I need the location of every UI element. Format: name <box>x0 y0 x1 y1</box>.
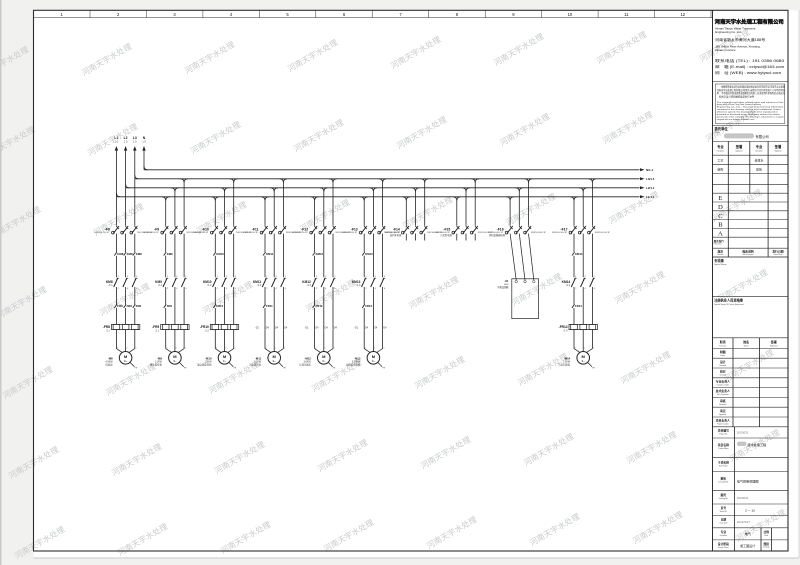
svg-text:Special Stamp: Special Stamp <box>714 263 726 266</box>
svg-text:Function: Function <box>719 344 726 347</box>
svg-text:专业: 专业 <box>721 530 727 534</box>
svg-text:项目负责人: 项目负责人 <box>716 419 730 423</box>
svg-text:网 址 (WEB) : www.hytyscl.com: 网 址 (WEB) : www.hytyscl.com <box>715 70 781 75</box>
svg-text:设计: 设计 <box>720 360 726 364</box>
svg-text:KM12: KM12 <box>302 280 311 284</box>
svg-text:FR13: FR13 <box>365 304 372 308</box>
svg-text:图名: 图名 <box>721 477 727 481</box>
svg-text:子项名称: 子项名称 <box>718 461 729 465</box>
svg-text:电气: 电气 <box>745 531 751 536</box>
svg-text:潜水搅拌机: 潜水搅拌机 <box>150 363 163 367</box>
svg-text:比例: 比例 <box>764 530 770 534</box>
svg-text:图号: 图号 <box>721 493 727 497</box>
svg-text:3~: 3~ <box>223 359 227 363</box>
svg-text:-F13: -F13 <box>351 227 358 231</box>
svg-text:项目名称: 项目名称 <box>718 443 729 447</box>
svg-text:D: D <box>718 204 723 211</box>
svg-text:Issue Date: Issue Date <box>719 522 727 525</box>
svg-text:职责: 职责 <box>720 339 726 344</box>
svg-text:L3/1.1: L3/1.1 <box>646 177 655 181</box>
svg-text:2020031: 2020031 <box>737 496 749 500</box>
svg-text:C: C <box>718 213 723 220</box>
svg-text:Drawing: Drawing <box>763 547 769 549</box>
svg-text:姓名: 姓名 <box>742 339 749 344</box>
svg-text:图别: 图别 <box>764 542 770 546</box>
svg-text:NSX100-100 3P: NSX100-100 3P <box>193 232 209 234</box>
svg-text:本图纸所载全部内容的版权及相关权益均归河南天宇(河南天宇水处: 本图纸所载全部内容的版权及相关权益均归河南天宇(河南天宇水处理 <box>717 84 785 88</box>
svg-text:混合液搅拌机: 混合液搅拌机 <box>197 363 212 367</box>
svg-text:Design Phase: Design Phase <box>718 547 729 549</box>
svg-text:Drawn: Drawn <box>720 355 725 357</box>
svg-text:制图: 制图 <box>720 350 726 354</box>
svg-text:Discipline Leader: Discipline Leader <box>717 384 730 386</box>
svg-text:建筑: 建筑 <box>756 167 762 172</box>
svg-text:/1.1: /1.1 <box>109 284 114 287</box>
svg-text:加药搅拌电机: 加药搅拌电机 <box>346 363 361 367</box>
svg-text:-F15: -F15 <box>443 227 450 231</box>
svg-text:-FR9: -FR9 <box>152 325 159 329</box>
svg-text:污泥回流泵: 污泥回流泵 <box>299 363 312 367</box>
svg-text:版次: 版次 <box>718 249 724 253</box>
svg-text:/1.1: /1.1 <box>155 329 160 332</box>
svg-text:Drawing Title: Drawing Title <box>719 481 729 484</box>
svg-text:有限公司: 有限公司 <box>756 134 769 139</box>
svg-text:A: A <box>718 230 723 237</box>
svg-text:-F10: -F10 <box>202 227 209 231</box>
svg-text:KM13: KM13 <box>352 280 361 284</box>
svg-text:日期: 日期 <box>721 518 727 522</box>
svg-text:工艺: 工艺 <box>718 158 724 163</box>
svg-text:审定: 审定 <box>720 409 726 413</box>
svg-text:-FR14: -FR14 <box>559 325 568 329</box>
svg-text:1.0: 1.0 <box>115 140 119 144</box>
svg-text:污水提升泵: 污水提升泵 <box>249 363 262 367</box>
svg-text:电气控制原理图: 电气控制原理图 <box>737 479 759 484</box>
svg-text:专业: 专业 <box>756 144 763 149</box>
svg-text:施工图设计: 施工图设计 <box>740 543 755 548</box>
svg-text:FR8: FR8 <box>127 304 133 308</box>
svg-text:回流泵: 回流泵 <box>105 363 113 367</box>
svg-text:KM8: KM8 <box>117 252 123 256</box>
svg-text:Sub Project: Sub Project <box>719 465 728 468</box>
svg-text:版次发行: 版次发行 <box>714 239 724 243</box>
svg-text:/1.1: /1.1 <box>106 329 111 332</box>
svg-text:KM14: KM14 <box>575 252 583 256</box>
svg-text:结构: 结构 <box>718 167 724 172</box>
svg-text:-FR10: -FR10 <box>200 325 209 329</box>
svg-text:联系电话 (TEL) : 191 0356 0680: 联系电话 (TEL) : 191 0356 0680 <box>715 58 784 63</box>
svg-text:修改说明: 修改说明 <box>741 249 753 253</box>
svg-text:Signature: Signature <box>774 150 781 153</box>
svg-text:Discipline: Discipline <box>720 535 727 537</box>
svg-text:/1.2: /1.2 <box>208 284 213 287</box>
svg-text:KM14: KM14 <box>562 280 571 284</box>
svg-text:NSX100-861 3P: NSX100-861 3P <box>488 232 504 234</box>
svg-text:N/1.1: N/1.1 <box>646 168 654 172</box>
svg-text:河南天宇水处理工程有限公司: 河南天宇水处理工程有限公司 <box>715 17 784 25</box>
svg-text:KM10: KM10 <box>203 280 212 284</box>
svg-text:河南省新乡市黄河大道188号: 河南省新乡市黄河大道188号 <box>715 37 766 42</box>
svg-text:/1.2: /1.2 <box>257 284 262 287</box>
svg-text:3~: 3~ <box>372 359 376 363</box>
svg-text:项目编号: 项目编号 <box>718 428 729 432</box>
svg-text:Checked: Checked <box>720 375 726 377</box>
svg-text:/1.1: /1.1 <box>158 284 163 287</box>
svg-text:NSX100-861 3P: NSX100-861 3P <box>531 232 547 234</box>
svg-text:3~: 3~ <box>322 359 326 363</box>
svg-text:1.0: 1.0 <box>124 140 128 144</box>
svg-text:KM12: KM12 <box>316 252 324 256</box>
svg-text:NSX100-100 3P: NSX100-100 3P <box>342 232 358 234</box>
svg-text:KM10: KM10 <box>216 252 224 256</box>
svg-text:NSX100-100 3P: NSX100-100 3P <box>293 232 309 234</box>
svg-text:邮 箱 (E-mail) : xxtyscl@163.com: 邮 箱 (E-mail) : xxtyscl@163.com <box>715 64 784 69</box>
svg-text:3~: 3~ <box>124 359 128 363</box>
svg-text:-F14: -F14 <box>393 227 400 231</box>
svg-text:页号: 页号 <box>720 506 727 510</box>
svg-text:-D1: -D1 <box>354 327 359 330</box>
svg-text:B: B <box>718 222 723 229</box>
svg-text:Revision: Revision <box>717 254 723 256</box>
svg-text:Special Stamp Of Person Regist: Special Stamp Of Person Registered <box>714 303 743 306</box>
svg-text:Reviewed: Reviewed <box>719 404 726 406</box>
svg-text:-FR8: -FR8 <box>103 325 110 329</box>
svg-text:3~: 3~ <box>272 359 276 363</box>
svg-text:专业负责人: 专业负责人 <box>716 379 730 383</box>
svg-text:-F8: -F8 <box>105 227 110 231</box>
svg-text:L2: L2 <box>124 136 128 140</box>
svg-text:校对: 校对 <box>720 370 726 374</box>
svg-text:1.0: 1.0 <box>142 140 146 144</box>
svg-text:FR12: FR12 <box>316 304 323 308</box>
svg-text:Tech. Supervisor: Tech. Supervisor <box>717 394 729 396</box>
svg-text:/1.4: /1.4 <box>566 284 571 287</box>
svg-text:-F9: -F9 <box>154 227 159 231</box>
svg-text:NSX100-100 3P: NSX100-100 3P <box>552 232 568 234</box>
svg-text:技术负责人: 技术负责人 <box>716 389 730 393</box>
svg-text:FR9: FR9 <box>167 304 173 308</box>
svg-text:FR10: FR10 <box>216 304 223 308</box>
svg-text:相关方设计资质图纸要求执行文件.: 相关方设计资质图纸要求执行文件. <box>717 94 755 98</box>
svg-text:/1.4: /1.4 <box>564 329 569 332</box>
svg-text:KM8: KM8 <box>127 252 133 256</box>
svg-text:L1: L1 <box>114 136 118 140</box>
svg-text:KM11: KM11 <box>266 252 274 256</box>
svg-text:2020031: 2020031 <box>737 431 749 435</box>
svg-text:Henan province: Henan province <box>715 48 736 52</box>
svg-text:/1.2: /1.2 <box>205 329 210 332</box>
svg-text:Designed: Designed <box>719 365 726 367</box>
svg-text:注册执业人员资格章: 注册执业人员资格章 <box>714 298 744 303</box>
svg-text:NSX100-100 3P: NSX100-100 3P <box>435 232 451 234</box>
svg-text:污泥回流泵: 污泥回流泵 <box>558 363 571 367</box>
svg-text:L1/1.1: L1/1.1 <box>646 195 655 199</box>
svg-text:KM8: KM8 <box>136 252 142 256</box>
svg-text:12: 12 <box>680 12 685 17</box>
svg-text:Signature: Signature <box>770 344 778 347</box>
svg-text:Discipline: Discipline <box>755 151 762 153</box>
svg-text:发行日期: 发行日期 <box>771 249 783 253</box>
svg-text:2 — 10: 2 — 10 <box>745 508 755 512</box>
svg-text:Project Name: Project Name <box>718 447 728 450</box>
svg-text:Scale: Scale <box>764 535 768 537</box>
svg-text:Name: Name <box>744 345 749 347</box>
svg-text:Signature: Signature <box>735 150 742 153</box>
svg-text:-U1: -U1 <box>504 279 509 283</box>
svg-text:Sheet No.: Sheet No. <box>720 510 728 513</box>
svg-text:签署: 签署 <box>770 339 777 344</box>
svg-text:NSX100-100 3P: NSX100-100 3P <box>384 232 400 234</box>
svg-text:-F12: -F12 <box>301 227 308 231</box>
svg-text:专业: 专业 <box>717 144 724 149</box>
svg-text:审核: 审核 <box>720 399 726 403</box>
svg-text:KM11: KM11 <box>253 280 262 284</box>
svg-text:NSX100-100 3P: NSX100-100 3P <box>144 232 160 234</box>
svg-text:L3: L3 <box>133 136 137 140</box>
svg-text:委托单位: 委托单位 <box>713 126 728 131</box>
svg-text:-F16: -F16 <box>497 227 504 231</box>
svg-text:NSX100-100 3P: NSX100-100 3P <box>94 232 110 234</box>
svg-text:NSX100-100 3P: NSX100-100 3P <box>595 232 611 234</box>
svg-text:-F11: -F11 <box>252 227 259 231</box>
svg-text:专项章: 专项章 <box>714 258 724 263</box>
svg-text:E: E <box>718 195 722 202</box>
svg-text:/1.3: /1.3 <box>307 284 312 287</box>
svg-text:Discipline: Discipline <box>717 151 724 153</box>
svg-text:废水处理工程: 废水处理工程 <box>748 442 767 447</box>
svg-text:Engineering Co.,Ltd.: Engineering Co.,Ltd. <box>715 30 742 34</box>
svg-text:FR8: FR8 <box>136 304 142 308</box>
svg-text:Drawing No.: Drawing No. <box>719 497 729 500</box>
svg-text:给排水: 给排水 <box>755 158 764 163</box>
svg-text:KM8: KM8 <box>106 280 113 284</box>
svg-text:1.0: 1.0 <box>133 140 137 144</box>
svg-text:NSX100-100 3P: NSX100-100 3P <box>243 232 259 234</box>
svg-text:-D1: -D1 <box>255 327 260 330</box>
svg-text:10: 10 <box>568 12 573 17</box>
svg-text:FR11: FR11 <box>266 304 273 308</box>
svg-text:shaped with our drawing busine: shaped with our drawing business seal. <box>717 118 755 121</box>
svg-text:KM9: KM9 <box>155 280 162 284</box>
svg-text:设计阶段: 设计阶段 <box>718 542 729 546</box>
svg-text:Project No.: Project No. <box>719 432 728 435</box>
svg-text:签署: 签署 <box>774 144 782 149</box>
svg-text:First Issue: First Issue <box>714 243 722 246</box>
svg-text:3~: 3~ <box>581 359 585 363</box>
svg-text:签署: 签署 <box>735 144 743 149</box>
svg-text:FR14: FR14 <box>575 304 582 308</box>
svg-text:-D1: -D1 <box>305 327 310 330</box>
svg-text:L2/1.1: L2/1.1 <box>646 186 655 190</box>
svg-text:11: 11 <box>624 12 629 17</box>
svg-text:-F17: -F17 <box>561 227 568 231</box>
svg-text:2022/3/27: 2022/3/27 <box>737 520 751 524</box>
svg-text:KM9: KM9 <box>167 252 173 256</box>
svg-text:3~: 3~ <box>173 359 177 363</box>
svg-text:/1.3: /1.3 <box>356 284 361 287</box>
svg-text:KM13: KM13 <box>365 252 373 256</box>
svg-text:FR8: FR8 <box>117 304 123 308</box>
svg-text:Client: Client <box>715 131 721 134</box>
